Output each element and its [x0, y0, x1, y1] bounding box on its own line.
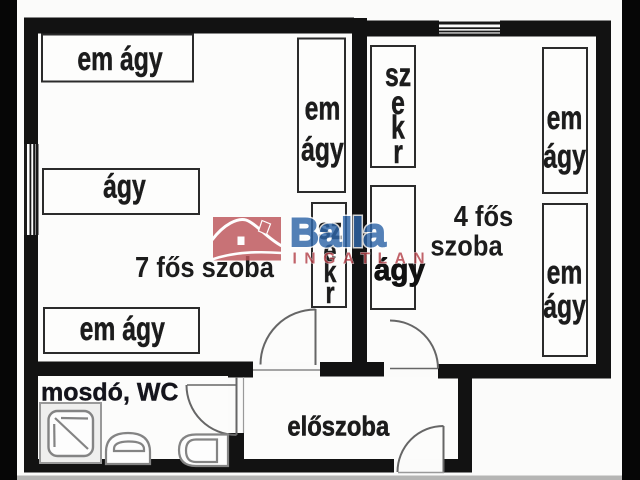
svg-text:em: em: [547, 255, 583, 291]
svg-text:r: r: [393, 135, 403, 171]
svg-text:em: em: [547, 101, 583, 137]
svg-text:4 fős: 4 fős: [454, 199, 514, 232]
svg-text:előszoba: előszoba: [287, 410, 389, 442]
svg-text:em ágy: em ágy: [80, 312, 166, 348]
svg-text:ágy: ágy: [543, 139, 586, 175]
svg-text:r: r: [325, 275, 334, 310]
svg-text:em: em: [305, 91, 341, 127]
svg-text:ágy: ágy: [301, 132, 344, 168]
svg-text:ágy: ágy: [543, 289, 586, 325]
svg-text:szoba: szoba: [430, 229, 503, 262]
svg-text:em ágy: em ágy: [77, 42, 163, 78]
svg-text:INGATLAN: INGATLAN: [293, 251, 433, 268]
svg-text:ágy: ágy: [103, 169, 146, 205]
svg-text:Balla: Balla: [290, 211, 386, 255]
